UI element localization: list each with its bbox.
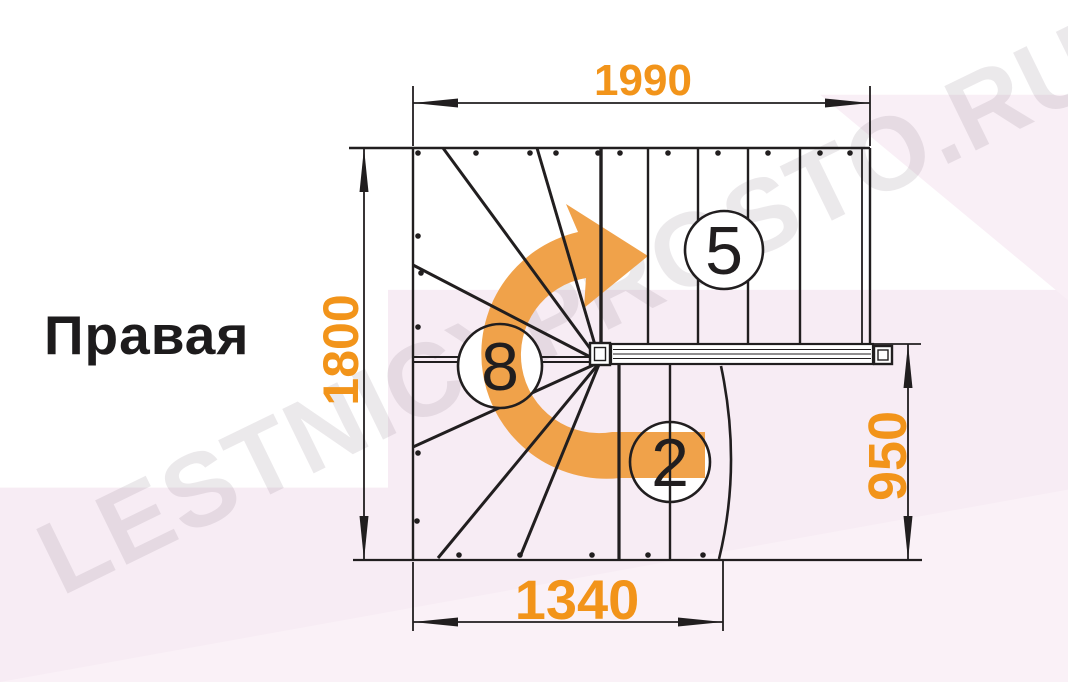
dimension-bottom-width: 1340: [413, 560, 723, 631]
dimension-label-top: 1990: [594, 56, 692, 105]
step-count-winders: 8: [481, 329, 519, 405]
landing-beam: [611, 344, 873, 364]
step-count-lower-flight: 2: [651, 425, 689, 501]
dimension-label-right: 950: [858, 411, 918, 501]
dimension-label-left: 1800: [313, 294, 369, 405]
dimension-top-width: 1990: [413, 56, 870, 146]
dimension-landing-depth: 950: [855, 344, 921, 560]
dimension-total-depth: 1800: [313, 148, 369, 560]
diagram-title: Правая: [44, 303, 249, 367]
dimension-label-bottom: 1340: [515, 568, 640, 631]
newel-post-center: [590, 343, 610, 365]
step-count-upper-flight: 5: [705, 213, 743, 289]
staircase-linework: [349, 148, 922, 560]
newel-post-right: [874, 346, 892, 364]
